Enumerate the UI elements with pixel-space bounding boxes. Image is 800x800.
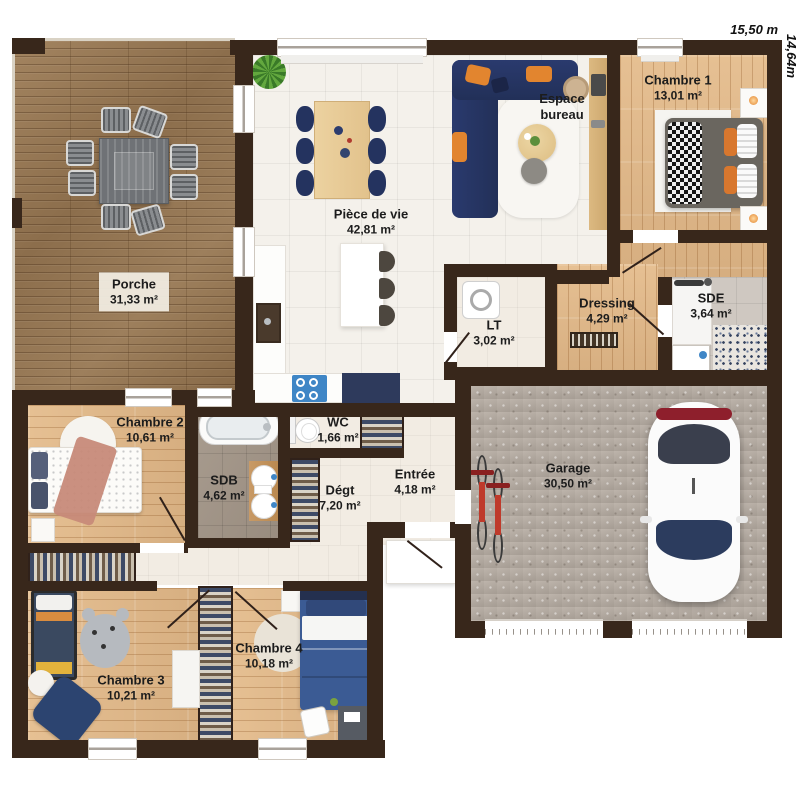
room-label-wc: WC 1,66 m² xyxy=(317,414,358,445)
degt-shoe-wardrobe xyxy=(290,458,320,542)
wall xyxy=(278,403,290,548)
room-label-garage: Garage 30,50 m² xyxy=(544,460,592,491)
dining-chair xyxy=(296,170,314,196)
car-mirror xyxy=(736,516,748,523)
sdb-shelf-box xyxy=(254,485,272,494)
chambre2-window xyxy=(197,388,232,407)
room-area: 1,66 m² xyxy=(317,431,358,446)
wall xyxy=(12,740,385,758)
room-area: 4,18 m² xyxy=(394,483,435,498)
car-windshield xyxy=(656,520,732,560)
car-mirror xyxy=(640,516,652,523)
wall xyxy=(545,264,557,380)
front-door-opening xyxy=(405,522,450,538)
room-name: SDB xyxy=(203,472,244,488)
bear-rug-ear xyxy=(116,608,129,621)
room-name: Espace bureau xyxy=(530,91,594,124)
room-area: 4,29 m² xyxy=(579,312,635,327)
room-area: 13,01 m² xyxy=(644,89,711,104)
entrance-step xyxy=(386,540,456,584)
bicycle-handlebar xyxy=(470,470,494,475)
bear-rug-dot xyxy=(110,626,115,631)
lamp xyxy=(749,96,758,105)
dining-chair xyxy=(368,138,386,164)
dining-chair xyxy=(368,170,386,196)
room-label-entree: Entrée 4,18 m² xyxy=(394,466,435,497)
room-area: 30,50 m² xyxy=(544,477,592,492)
chambre3-desk xyxy=(172,650,200,708)
porch-chair xyxy=(101,107,131,133)
toilet-seat xyxy=(301,423,317,440)
bed-pillow xyxy=(737,164,757,198)
bed-pillow xyxy=(737,124,757,158)
room-name: Chambre 1 xyxy=(644,72,711,88)
garage-service-door xyxy=(455,490,471,524)
burner xyxy=(296,391,305,400)
shower-bar xyxy=(674,280,704,286)
porch-chair xyxy=(170,174,198,200)
car-rear-window xyxy=(658,424,730,464)
room-area: 42,81 m² xyxy=(334,223,408,238)
dressing-rail xyxy=(570,332,618,348)
porch-chair xyxy=(68,170,96,196)
sdb-faucet xyxy=(271,474,277,480)
nightstand xyxy=(31,518,55,542)
room-name: Chambre 2 xyxy=(116,414,183,430)
car-taillights xyxy=(656,408,732,420)
room-name: LT xyxy=(473,317,514,333)
bed-pillow xyxy=(31,482,48,509)
room-label-sde: SDE 3,64 m² xyxy=(690,290,731,321)
bicycle-frame xyxy=(495,495,501,535)
porch-chair xyxy=(101,204,131,230)
room-label-chambre1: Chambre 1 13,01 m² xyxy=(644,72,711,103)
car-antenna xyxy=(692,478,695,494)
wall xyxy=(185,403,198,548)
chambre34-closet xyxy=(198,586,233,742)
table-decor xyxy=(334,126,343,135)
room-name: Garage xyxy=(544,460,592,476)
porch-edge-top xyxy=(12,38,235,41)
porch-chair xyxy=(170,144,198,170)
garage-door xyxy=(632,619,747,640)
chambre4-chair xyxy=(299,706,330,739)
bathtub-basin xyxy=(206,414,270,440)
living-porch-window xyxy=(233,85,255,133)
bicycle-frame xyxy=(479,482,485,522)
wall xyxy=(444,264,557,277)
ottoman xyxy=(521,158,547,184)
room-name: Dégt xyxy=(319,482,360,498)
room-name: Dressing xyxy=(579,295,635,311)
wall xyxy=(367,522,383,758)
room-name: Chambre 4 xyxy=(235,640,302,656)
room-label-espace-bureau: Espace bureau xyxy=(530,91,594,124)
wall xyxy=(235,55,253,85)
wall xyxy=(444,367,557,380)
table-decor xyxy=(340,148,350,158)
wall xyxy=(767,40,782,638)
burner xyxy=(309,391,318,400)
sde-faucet xyxy=(699,351,707,359)
bed-fold-line xyxy=(302,676,370,678)
room-label-chambre3: Chambre 3 10,21 m² xyxy=(97,672,164,703)
kitchen-faucet xyxy=(264,318,271,325)
bed-pillow xyxy=(31,452,48,479)
lamp xyxy=(749,214,758,223)
shower-head xyxy=(704,278,712,286)
bear-rug-dot xyxy=(92,630,97,635)
room-area: 4,62 m² xyxy=(203,489,244,504)
bed-sheet-fold xyxy=(302,616,370,640)
room-label-chambre4: Chambre 4 10,18 m² xyxy=(235,640,302,671)
room-name: Porche xyxy=(110,276,158,292)
wall xyxy=(607,55,620,277)
wall xyxy=(235,133,253,227)
bicycle-handlebar xyxy=(486,483,510,488)
wall xyxy=(283,448,404,458)
room-name: SDE xyxy=(690,290,731,306)
porch-post xyxy=(12,38,45,54)
dining-chair xyxy=(368,106,386,132)
dining-chair xyxy=(296,138,314,164)
plant-small xyxy=(330,698,338,706)
sofa-cushion-orange xyxy=(452,132,467,162)
wall xyxy=(230,40,277,55)
kitchen-counter-navy xyxy=(342,373,400,403)
bear-rug xyxy=(80,614,130,668)
dining-chair xyxy=(296,106,314,132)
window-sill xyxy=(641,55,679,62)
room-name: Entrée xyxy=(394,466,435,482)
room-area: 7,20 m² xyxy=(319,499,360,514)
chambre3-window xyxy=(88,738,137,760)
room-label-chambre2: Chambre 2 10,61 m² xyxy=(116,414,183,445)
wall xyxy=(12,390,28,758)
bed-pillow xyxy=(306,600,366,616)
room-label-piece-de-vie: Pièce de vie 42,81 m² xyxy=(334,206,408,237)
porch-table-center xyxy=(114,152,154,190)
room-area: 3,02 m² xyxy=(473,334,514,349)
room-label-sdb: SDB 4,62 m² xyxy=(203,472,244,503)
garage-door xyxy=(485,619,603,640)
door-opening xyxy=(140,543,184,553)
bathtub-faucet xyxy=(263,423,271,431)
washing-machine-drum xyxy=(470,289,492,311)
wall xyxy=(28,581,157,591)
wall xyxy=(193,538,283,548)
wall xyxy=(557,270,609,284)
chambre4-window xyxy=(258,738,307,760)
burner xyxy=(296,378,305,387)
room-name: WC xyxy=(317,414,358,430)
room-name: Pièce de vie xyxy=(334,206,408,222)
room-name: Chambre 3 xyxy=(97,672,164,688)
room-label-degt: Dégt 7,20 m² xyxy=(319,482,360,513)
bed-accent-orange xyxy=(36,612,72,621)
table-decor xyxy=(347,138,352,143)
wall xyxy=(427,40,637,55)
dimension-width: 15,50 m xyxy=(690,22,778,37)
room-label-porche: Porche 31,33 m² xyxy=(99,272,169,311)
porch-chair xyxy=(66,140,94,166)
bear-rug-ear xyxy=(82,608,95,621)
sde-sink xyxy=(672,345,710,373)
living-porch-window xyxy=(233,227,255,277)
room-label-lt: LT 3,02 m² xyxy=(473,317,514,348)
coffee-table-plant xyxy=(530,136,540,146)
bed-houndstooth-blanket xyxy=(668,122,702,204)
bed-fold-line xyxy=(302,648,370,650)
burner xyxy=(309,378,318,387)
door-opening xyxy=(633,230,678,243)
room-area: 10,18 m² xyxy=(235,657,302,672)
sdb-faucet xyxy=(271,502,277,508)
room-label-dressing: Dressing 4,29 m² xyxy=(579,295,635,326)
window-sill xyxy=(281,55,423,64)
bed-cushion-orange xyxy=(724,128,737,156)
coffee-table-decor xyxy=(524,133,531,140)
bed-cushion-orange xyxy=(724,166,737,194)
room-area: 31,33 m² xyxy=(110,293,158,308)
room-area: 3,64 m² xyxy=(690,307,731,322)
porch-post xyxy=(12,198,22,228)
kitchen-island xyxy=(340,243,384,327)
wall xyxy=(235,277,253,393)
sofa-cushion-orange xyxy=(526,66,552,82)
chambre2-window xyxy=(125,388,172,407)
room-area: 10,61 m² xyxy=(116,431,183,446)
room-area: 10,21 m² xyxy=(97,689,164,704)
bear-rug-dot xyxy=(101,644,106,649)
dimension-height: 14,64m xyxy=(784,34,799,98)
bed-pillow xyxy=(36,595,72,610)
desk-paper xyxy=(344,712,360,722)
wall xyxy=(283,581,383,591)
floor-plan: Porche 31,33 m² Pièce de vie 42,81 m² Es… xyxy=(0,0,800,800)
